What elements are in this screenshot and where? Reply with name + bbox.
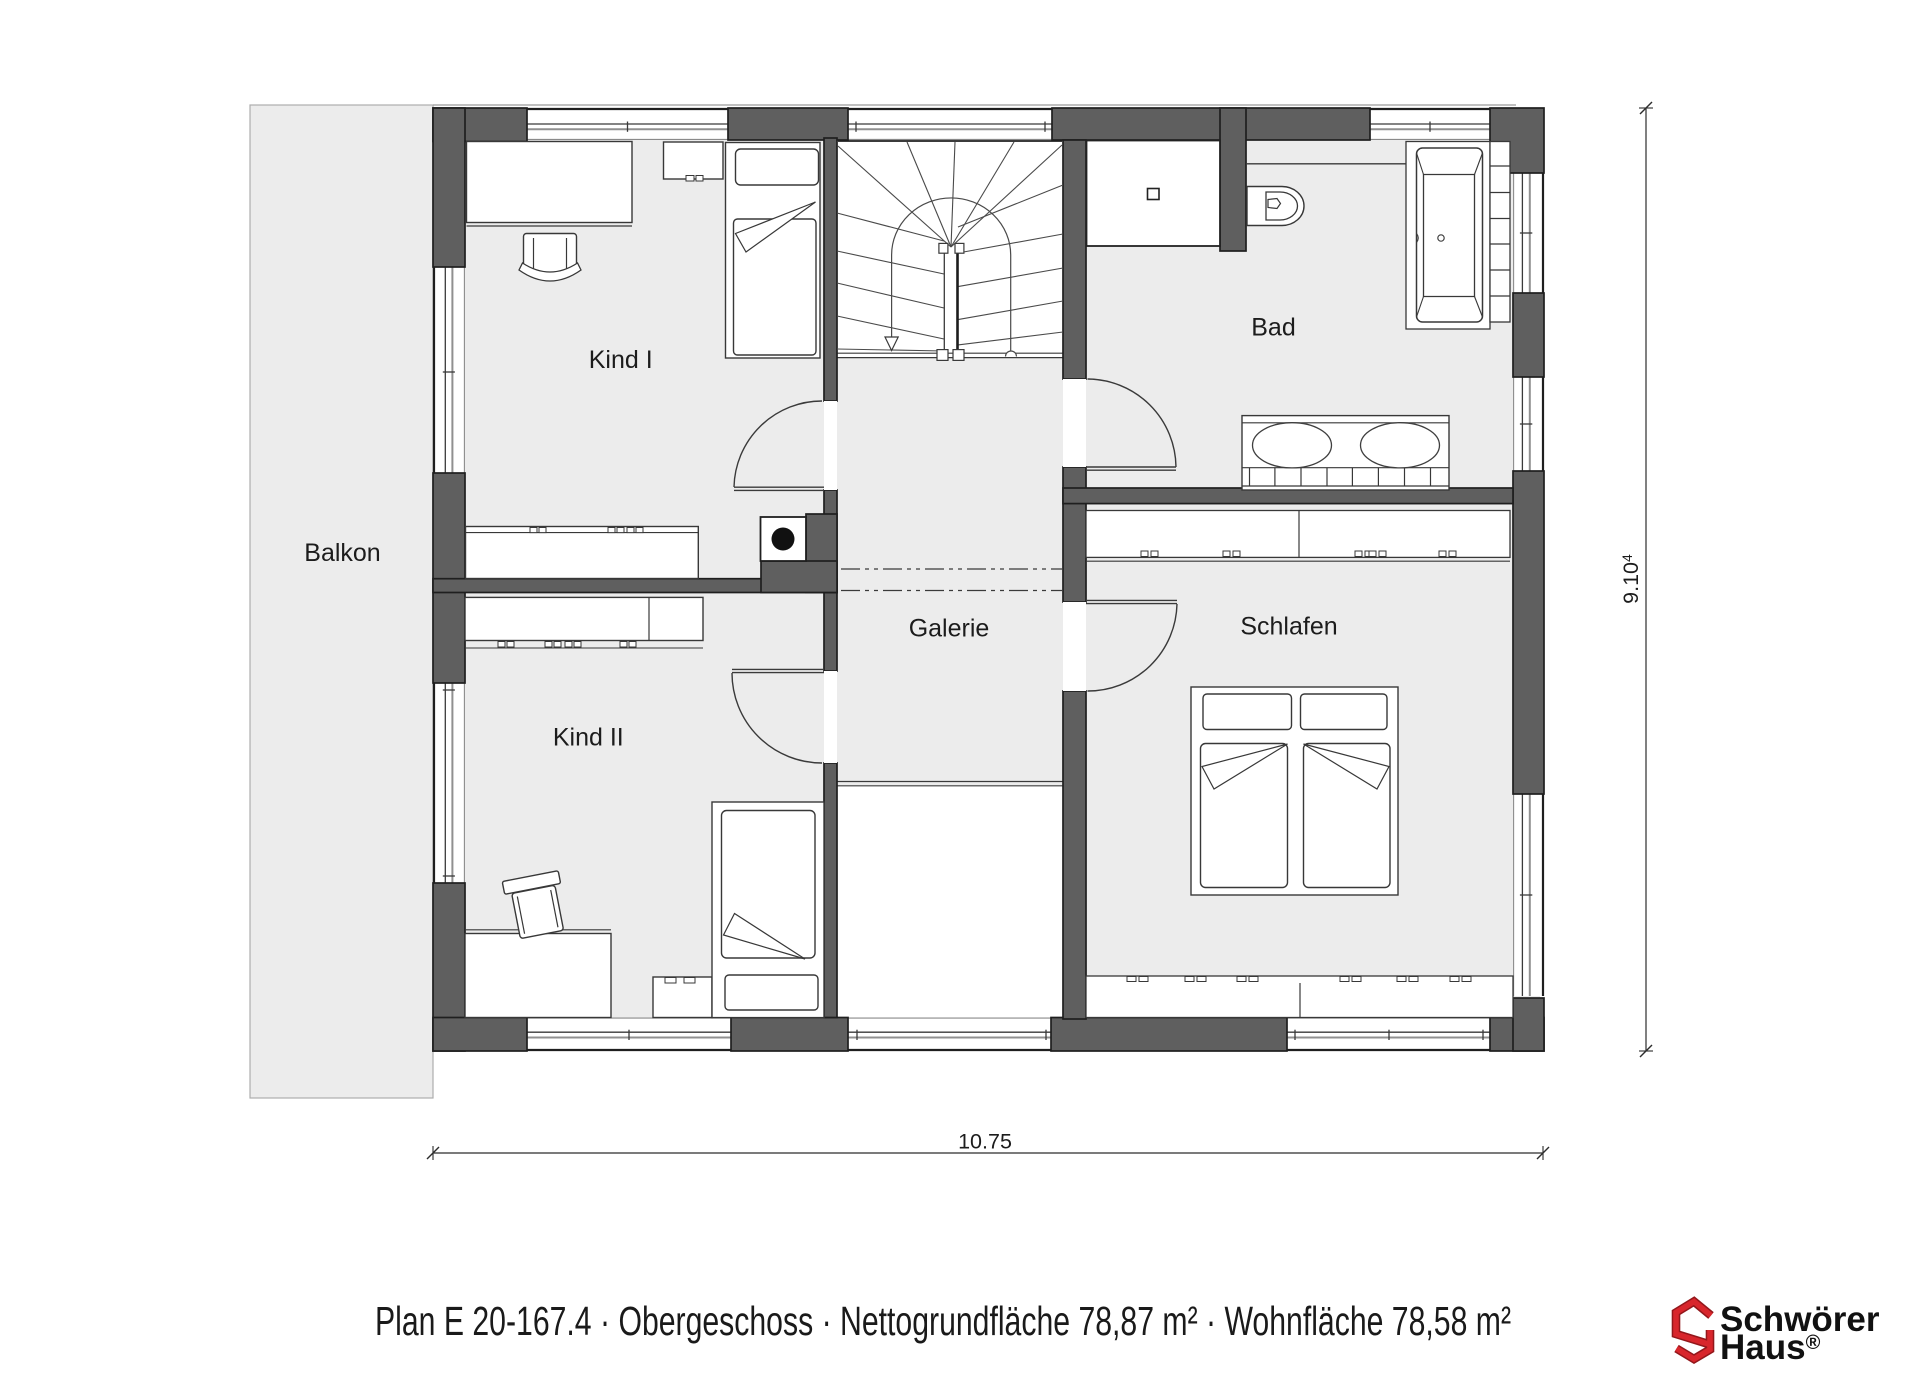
svg-text:Bad: Bad xyxy=(1251,314,1295,342)
svg-text:Balkon: Balkon xyxy=(304,539,380,567)
svg-text:10.75: 10.75 xyxy=(958,1130,1012,1154)
svg-text:Schlafen: Schlafen xyxy=(1240,613,1337,641)
svg-text:Kind II: Kind II xyxy=(553,724,624,752)
svg-text:Galerie: Galerie xyxy=(909,615,990,643)
svg-text:Haus®: Haus® xyxy=(1720,1328,1821,1367)
svg-text:Plan E 20-167.4 · Obergeschoss: Plan E 20-167.4 · Obergeschoss · Nettogr… xyxy=(375,1298,1511,1344)
svg-text:Kind I: Kind I xyxy=(589,346,653,374)
